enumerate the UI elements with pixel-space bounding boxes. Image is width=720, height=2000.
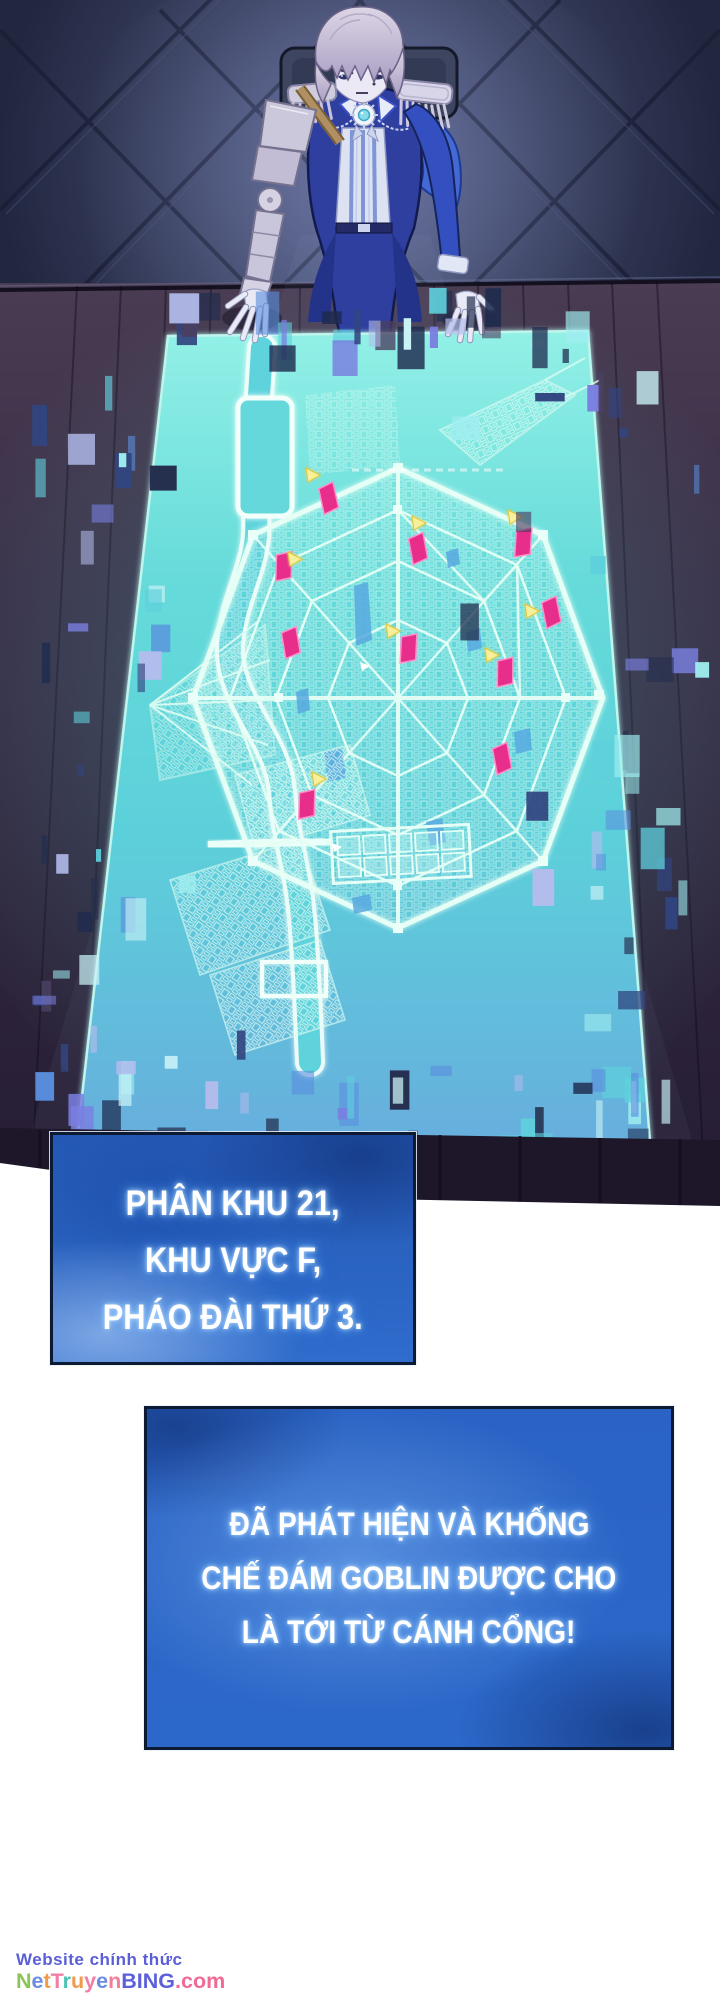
glitch-rect: [119, 1073, 132, 1106]
glitch-rect: [535, 393, 565, 401]
glitch-rect: [338, 1108, 348, 1119]
glitch-rect: [695, 662, 709, 678]
glitch-rect: [624, 937, 633, 954]
glitch-rect: [35, 459, 45, 498]
glitch-rect: [126, 898, 147, 940]
glitch-rect: [585, 1014, 612, 1031]
glitch-rect: [347, 1076, 354, 1118]
glitch-rect: [631, 1073, 639, 1117]
glitch-rect: [662, 1080, 671, 1124]
pink-flag-marker: [297, 788, 317, 821]
glitch-rect: [404, 318, 411, 350]
glitch-rect: [292, 1071, 314, 1095]
watermark-letter: t: [44, 1969, 51, 1993]
glitch-rect: [96, 849, 101, 862]
hologram-map: [78, 331, 650, 1142]
glitch-rect: [599, 372, 604, 414]
glitch-rect: [445, 319, 466, 335]
glitch-rect: [369, 321, 381, 347]
glitch-rect: [182, 322, 197, 337]
glitch-rect: [169, 293, 199, 323]
narration-line: LÀ TỚI TỪ CÁNH CỔNG!: [242, 1605, 576, 1659]
watermark: Website chính thức NetTruyenBING.com: [16, 1951, 225, 1993]
glitch-rect: [672, 648, 698, 673]
watermark-letter: N: [143, 1969, 159, 1993]
glitch-rect: [431, 1066, 452, 1076]
glitch-rect: [322, 311, 342, 324]
glitch-rect: [91, 1026, 97, 1053]
glitch-rect: [591, 886, 604, 900]
glitch-rect: [32, 405, 47, 446]
glitch-rect: [587, 385, 600, 412]
glitch-rect: [532, 327, 547, 368]
watermark-letter: y: [84, 1969, 96, 1993]
glitch-rect: [694, 465, 699, 494]
comic-page: PHÂN KHU 21, KHU VỰC F, PHÁO ĐÀI THỨ 3. …: [0, 0, 720, 2000]
watermark-site-name: NetTruyenBING.com: [16, 1970, 225, 1994]
watermark-letter: N: [16, 1969, 32, 1993]
glitch-rect: [105, 376, 112, 411]
glitch-rect: [429, 288, 446, 314]
narration-line: PHÁO ĐÀI THỨ 3.: [103, 1289, 363, 1346]
glitch-rect: [240, 1093, 249, 1114]
glitch-rect: [197, 293, 221, 321]
narration-box-1: PHÂN KHU 21, KHU VỰC F, PHÁO ĐÀI THỨ 3.: [50, 1132, 416, 1365]
glitch-rect: [77, 765, 83, 775]
watermark-tagline: Website chính thức: [16, 1951, 225, 1970]
glitch-rect: [74, 712, 90, 724]
glitch-rect: [592, 1069, 606, 1092]
glitch-rect: [573, 1083, 592, 1094]
narration-line: KHU VỰC F,: [145, 1232, 321, 1289]
glitch-rect: [116, 1061, 136, 1074]
glitch-rect: [452, 416, 479, 440]
glitch-rect: [563, 349, 569, 363]
glitch-rect: [665, 897, 677, 929]
pink-flag-marker: [398, 632, 419, 665]
watermark-letter: r: [63, 1969, 71, 1993]
glitch-rect: [53, 970, 70, 978]
watermark-letter: T: [51, 1969, 63, 1993]
glitch-rect: [354, 310, 360, 344]
glitch-rect: [61, 1044, 69, 1072]
glitch-rect: [526, 792, 548, 821]
glitch-rect: [179, 876, 196, 893]
glitch-rect: [256, 292, 279, 335]
glitch-rect: [467, 296, 475, 327]
glitch-rect: [646, 657, 674, 682]
glitch-rect: [92, 505, 114, 523]
glitch-rect: [151, 625, 170, 653]
watermark-letter: u: [71, 1969, 84, 1993]
glitch-rect: [591, 556, 606, 574]
glitch-rect: [393, 1078, 403, 1104]
glitch-rect: [485, 288, 501, 327]
glitch-rect: [32, 996, 56, 1005]
glitch-rect: [145, 589, 162, 612]
glitch-rect: [91, 878, 99, 919]
glitch-rect: [150, 466, 177, 491]
glitch-rect: [678, 880, 687, 915]
glitch-rect: [460, 604, 479, 641]
glitch-rect: [566, 311, 590, 343]
watermark-letter: G: [158, 1969, 175, 1993]
belt-buckle: [358, 224, 370, 232]
glitch-rect: [68, 1094, 84, 1126]
glitch-rect: [81, 531, 94, 565]
glitch-rect: [596, 1100, 603, 1143]
glitch-rect: [56, 854, 68, 874]
watermark-letter: o: [193, 1969, 206, 1993]
glitch-rect: [430, 327, 438, 348]
glitch-rect: [35, 1072, 54, 1101]
glitch-rect: [42, 643, 50, 683]
glitch-rect: [68, 434, 95, 465]
narration-line: CHẾ ĐÁM GOBLIN ĐƯỢC CHO: [201, 1551, 616, 1605]
glitch-rect: [205, 1081, 218, 1109]
glitch-rect: [77, 912, 92, 932]
glitch-rect: [606, 810, 631, 830]
watermark-letter: c: [181, 1969, 193, 1993]
glitch-rect: [619, 428, 628, 437]
glitch-rect: [615, 735, 640, 777]
narration-box-2: ĐÃ PHÁT HIỆN VÀ KHỐNG CHẾ ĐÁM GOBLIN ĐƯỢ…: [144, 1406, 674, 1750]
glitch-rect: [609, 388, 621, 418]
glitch-rect: [533, 869, 555, 906]
glitch-rect: [333, 340, 358, 376]
comic-panel-artwork: [0, 0, 720, 1210]
glitch-rect: [656, 808, 680, 825]
glitch-rect: [516, 512, 531, 532]
glitch-rect: [165, 1056, 178, 1069]
watermark-letter: e: [32, 1969, 44, 1993]
glitch-rect: [625, 659, 648, 671]
watermark-letter: m: [206, 1969, 225, 1993]
glitch-rect: [79, 955, 99, 985]
watermark-letter: B: [121, 1969, 137, 1993]
glitch-rect: [119, 453, 126, 467]
narration-line: ĐÃ PHÁT HIỆN VÀ KHỐNG: [229, 1497, 589, 1551]
glitch-rect: [641, 828, 665, 870]
glitch-rect: [42, 835, 47, 863]
glitch-rect: [596, 854, 606, 871]
glitch-rect: [269, 345, 295, 371]
glitch-rect: [237, 1031, 246, 1060]
vest: [336, 128, 390, 225]
glitch-rect: [618, 991, 645, 1009]
pink-flag-marker: [495, 656, 515, 688]
watermark-letter: e: [96, 1969, 108, 1993]
glitch-rect: [138, 664, 146, 693]
glitch-rect: [515, 1075, 523, 1091]
narration-line: PHÂN KHU 21,: [126, 1175, 340, 1232]
watermark-letter: n: [108, 1969, 121, 1993]
glitch-rect: [68, 623, 88, 631]
glitch-rect: [637, 371, 659, 404]
